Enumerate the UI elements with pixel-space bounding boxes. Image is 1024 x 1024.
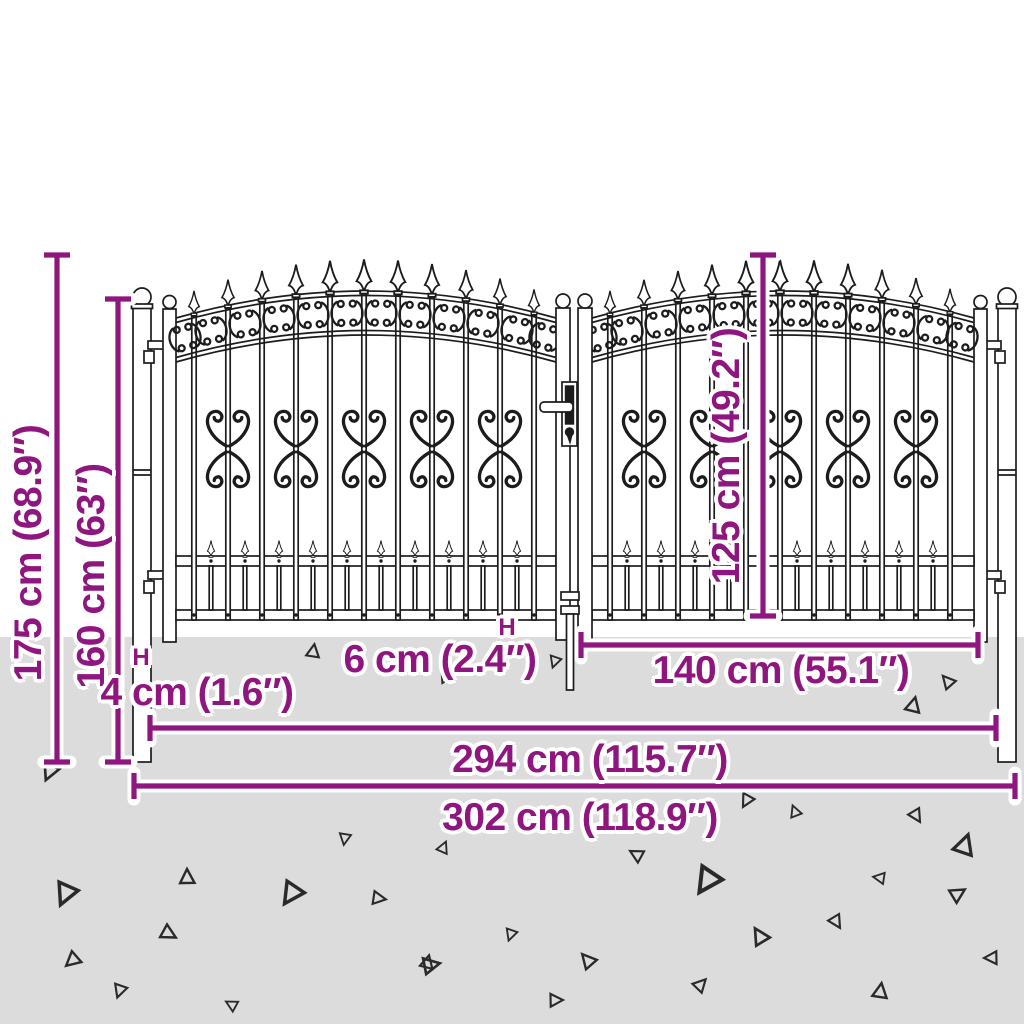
post-width-marker: H (132, 644, 149, 672)
left-gate-leaf (167, 259, 563, 620)
dimension-label-leaf-width: 140 cm (55.1″) (653, 649, 910, 693)
diagram-canvas: 175 cm (68.9″) 160 cm (63″) 125 cm (49.2… (0, 0, 1024, 1024)
right-frame-tube (974, 296, 987, 643)
dimension-label-leaf-height: 125 cm (49.2″) (705, 328, 749, 585)
ground-clearance-marker: H (498, 614, 515, 642)
meeting-stiles (556, 294, 592, 640)
dimension-label-inner-width: 294 cm (115.7″) (452, 738, 728, 782)
dimension-label-outer-width: 302 cm (118.9″) (442, 796, 718, 840)
right-gate-leaf (583, 259, 980, 620)
gate-dimension-diagram (0, 0, 1024, 1024)
dimension-label-post-width: 4 cm (1.6″) (100, 671, 293, 715)
dimension-label-total-height: 175 cm (68.9″) (7, 425, 51, 682)
dimension-label-post-height: 160 cm (63″) (70, 463, 114, 688)
dimension-label-ground-clearance: 6 cm (2.4″) (343, 638, 536, 682)
